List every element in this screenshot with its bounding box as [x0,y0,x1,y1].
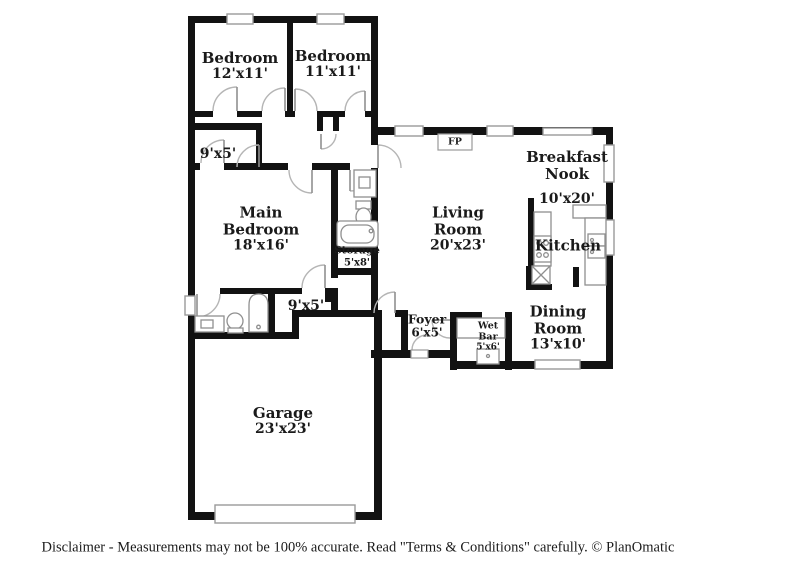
bath-sink [359,177,370,188]
room-name: Dining Room [520,303,596,337]
room-label-wet-bar: Wet Bar 5'x6' [471,321,505,352]
floor-plan-drawing [0,0,800,582]
room-name: Bedroom [198,50,282,67]
room-label-dining-room: Dining Room 13'x10' [520,303,596,352]
room-label-bedroom-1: Bedroom 12'x11' [198,50,282,82]
room-dims: 13'x10' [520,337,596,353]
room-dims: 5'x8' [329,257,385,268]
floor-plan-page: Bedroom 12'x11' Bedroom 11'x11' 9'x5' Ma… [0,0,800,582]
bathtub-inner [341,225,374,243]
window-dining [535,360,580,369]
room-label-foyer: Foyer 6'x5' [400,312,454,339]
room-dims: 10'x20' [520,191,614,207]
room-name: Kitchen [532,238,604,255]
second-bath-fixtures [195,294,268,333]
tub-faucet [369,229,373,233]
room-name: Foyer [400,312,454,326]
room-name: Main Bedroom [217,204,305,238]
room-dims: 12'x11' [198,67,282,83]
room-dims: 6'x5' [400,326,454,339]
room-dims: 11'x11' [291,65,375,81]
window-bedroom1 [227,14,253,24]
room-label-main-bedroom: Main Bedroom 18'x16' [217,204,305,253]
window-living-2 [487,126,513,136]
window-bedroom2 [317,14,344,24]
room-label-bedroom-2: Bedroom 11'x11' [291,48,375,80]
room-name: Wet Bar [471,321,505,342]
room-dims: 23'x23' [241,422,325,438]
side-door [185,296,195,315]
room-label-garage: Garage 23'x23' [241,405,325,437]
disclaimer-text: Disclaimer - Measurements may not be 100… [42,540,675,557]
window-breakfast [543,128,592,135]
room-dims: 20'x23' [421,238,495,254]
garage-door [215,505,355,523]
sink [201,320,213,328]
room-label-living-room: Living Room 20'x23' [421,204,495,253]
front-door [411,350,428,358]
fireplace-label: FP [448,137,462,148]
drain [487,355,490,358]
toilet-bowl [227,313,243,329]
room-label-upper-hall: 9'x5' [191,147,245,163]
room-name: Storage [329,246,385,258]
room-dims: 9'x5' [191,147,245,163]
toilet-base [228,328,243,333]
room-name: Garage [241,405,325,422]
room-name: Bedroom [291,48,375,65]
shower-drain [257,325,261,329]
room-label-lower-hall: 9'x5' [279,299,333,315]
room-dims: 5'x6' [471,343,505,353]
room-dims: 18'x16' [217,238,305,254]
room-dims: 9'x5' [279,299,333,315]
room-label-breakfast-nook: Breakfast Nook 10'x20' [520,149,614,207]
window-living-1 [395,126,423,136]
room-label-storage: Storage 5'x8' [329,246,385,269]
room-name: Living Room [421,204,495,238]
room-name: Breakfast Nook [520,149,614,183]
room-label-kitchen: Kitchen [532,238,604,255]
